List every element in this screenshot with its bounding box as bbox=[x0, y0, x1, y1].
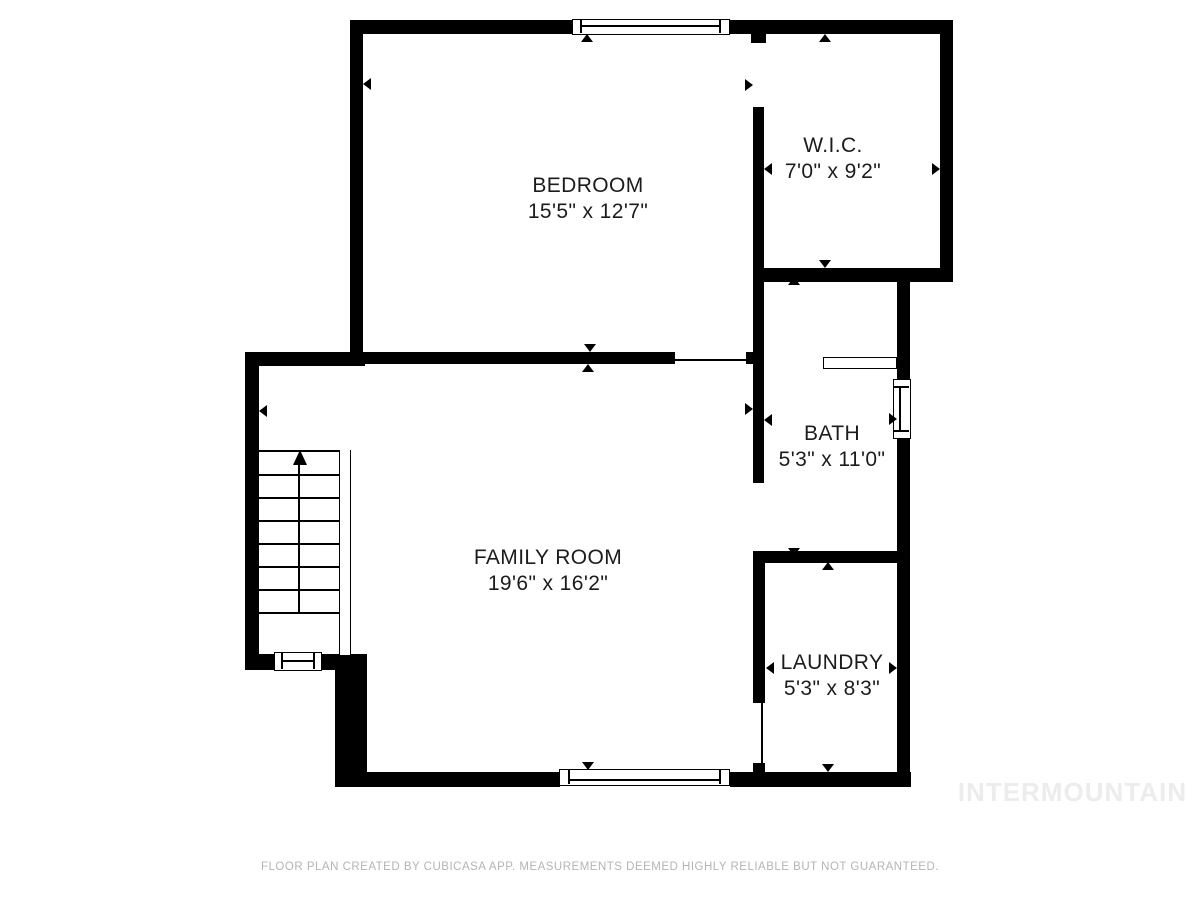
room-dims: 5'3" x 8'3" bbox=[682, 676, 982, 702]
wall-stair-left bbox=[245, 352, 259, 670]
wall-bottom-left bbox=[335, 772, 560, 787]
room-name: W.I.C. bbox=[683, 133, 983, 159]
dim-arrow-up-icon bbox=[788, 277, 800, 285]
room-label-family-room: FAMILY ROOM 19'6" x 16'2" bbox=[398, 545, 698, 597]
room-dims: 19'6" x 16'2" bbox=[398, 571, 698, 597]
wall-top-left bbox=[350, 20, 572, 34]
room-label-wic: W.I.C. 7'0" x 9'2" bbox=[683, 133, 983, 185]
room-name: FAMILY ROOM bbox=[398, 545, 698, 571]
wall-stair-bottom-a bbox=[245, 654, 275, 670]
dim-arrow-up-icon bbox=[582, 364, 594, 372]
stair-tread-line bbox=[259, 612, 339, 614]
dim-arrow-up-icon bbox=[581, 34, 593, 42]
wall-bedroom-bottom bbox=[350, 352, 675, 364]
wall-right-lower-a bbox=[897, 282, 910, 380]
dim-arrow-left-icon bbox=[363, 78, 371, 90]
stair-handrail bbox=[339, 450, 351, 655]
room-label-laundry: LAUNDRY 5'3" x 8'3" bbox=[682, 650, 982, 702]
wall-right-lower-b bbox=[897, 438, 910, 787]
disclaimer-text: FLOOR PLAN CREATED BY CUBICASA APP. MEAS… bbox=[0, 861, 1200, 873]
wall-stair-top bbox=[245, 352, 365, 366]
room-dims: 7'0" x 9'2" bbox=[683, 159, 983, 185]
stairs-direction-arrow-icon bbox=[298, 462, 300, 612]
dim-arrow-down-icon bbox=[819, 260, 831, 268]
window-frame-line bbox=[313, 653, 315, 669]
wall-bedroom-left bbox=[350, 20, 363, 364]
room-name: LAUNDRY bbox=[682, 650, 982, 676]
bath-shelf bbox=[823, 357, 897, 369]
watermark-text: INTERMOUNTAIN bbox=[958, 777, 1187, 808]
window-frame-line bbox=[282, 660, 313, 662]
window-frame-line bbox=[894, 386, 909, 388]
window-frame-line bbox=[581, 25, 720, 27]
dim-arrow-up-icon bbox=[819, 34, 831, 42]
opening-line-hall bbox=[675, 359, 748, 361]
window-frame-line bbox=[719, 770, 721, 784]
window-frame-line bbox=[719, 20, 721, 33]
dim-arrow-right-icon bbox=[745, 79, 753, 91]
dim-arrow-left-icon bbox=[259, 405, 267, 417]
opening-line-laundry-door bbox=[761, 703, 763, 770]
window-frame-line bbox=[568, 770, 570, 784]
wall-top-right bbox=[730, 20, 953, 34]
dim-arrow-down-icon bbox=[584, 344, 596, 352]
window-bedroom-top bbox=[572, 19, 730, 35]
window-frame-line bbox=[580, 20, 582, 33]
dim-arrow-down-icon bbox=[822, 764, 834, 772]
wall-bottom-right bbox=[730, 772, 911, 787]
dim-arrow-right-icon bbox=[745, 403, 753, 415]
room-dims: 5'3" x 11'0" bbox=[682, 447, 982, 473]
window-frame-line bbox=[569, 779, 719, 781]
room-label-bath: BATH 5'3" x 11'0" bbox=[682, 421, 982, 473]
floor-plan-canvas: BEDROOM 15'5" x 12'7" W.I.C. 7'0" x 9'2"… bbox=[0, 0, 1200, 900]
room-dims: 15'5" x 12'7" bbox=[438, 199, 738, 225]
wall-laundry-left-stub bbox=[753, 763, 765, 772]
dim-arrow-down-icon bbox=[582, 762, 594, 770]
room-name: BATH bbox=[682, 421, 982, 447]
dim-arrow-up-icon bbox=[822, 562, 834, 570]
wall-left-lower bbox=[335, 654, 367, 787]
stairs-direction-arrowhead-icon bbox=[293, 450, 307, 465]
wall-divider-top-stub bbox=[751, 34, 766, 43]
window-family-bottom bbox=[559, 769, 730, 786]
dim-arrow-down-icon bbox=[788, 548, 800, 556]
